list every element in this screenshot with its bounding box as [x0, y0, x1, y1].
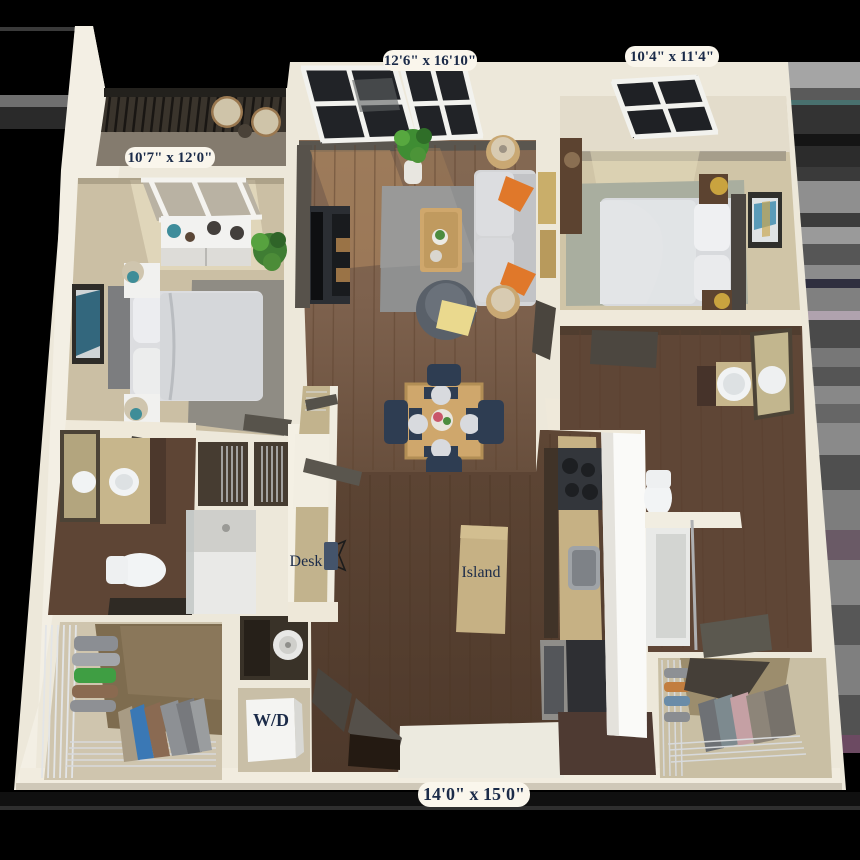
svg-text:12'6" x 16'10": 12'6" x 16'10" [384, 53, 477, 69]
svg-text:14'0" x 15'0": 14'0" x 15'0" [423, 784, 525, 804]
svg-text:Island: Island [461, 564, 500, 581]
svg-text:10'7" x 12'0": 10'7" x 12'0" [128, 150, 213, 166]
svg-text:Desk: Desk [290, 553, 323, 570]
svg-text:10'4" x 11'4": 10'4" x 11'4" [630, 49, 714, 65]
svg-text:W/D: W/D [253, 710, 289, 730]
